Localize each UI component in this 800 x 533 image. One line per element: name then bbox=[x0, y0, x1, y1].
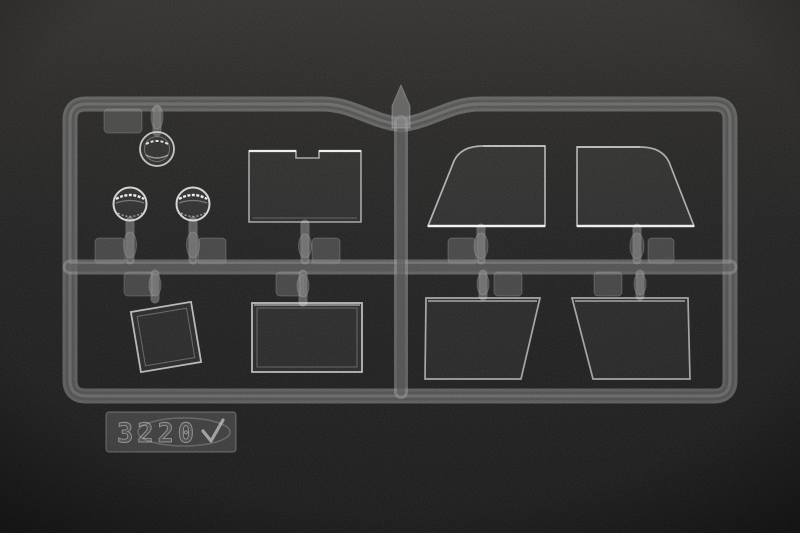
sprue-photo-canvas: 3220 bbox=[0, 0, 800, 533]
photo-of-clear-model-sprue: 3220 bbox=[0, 0, 800, 533]
vignette-overlay bbox=[0, 0, 800, 533]
